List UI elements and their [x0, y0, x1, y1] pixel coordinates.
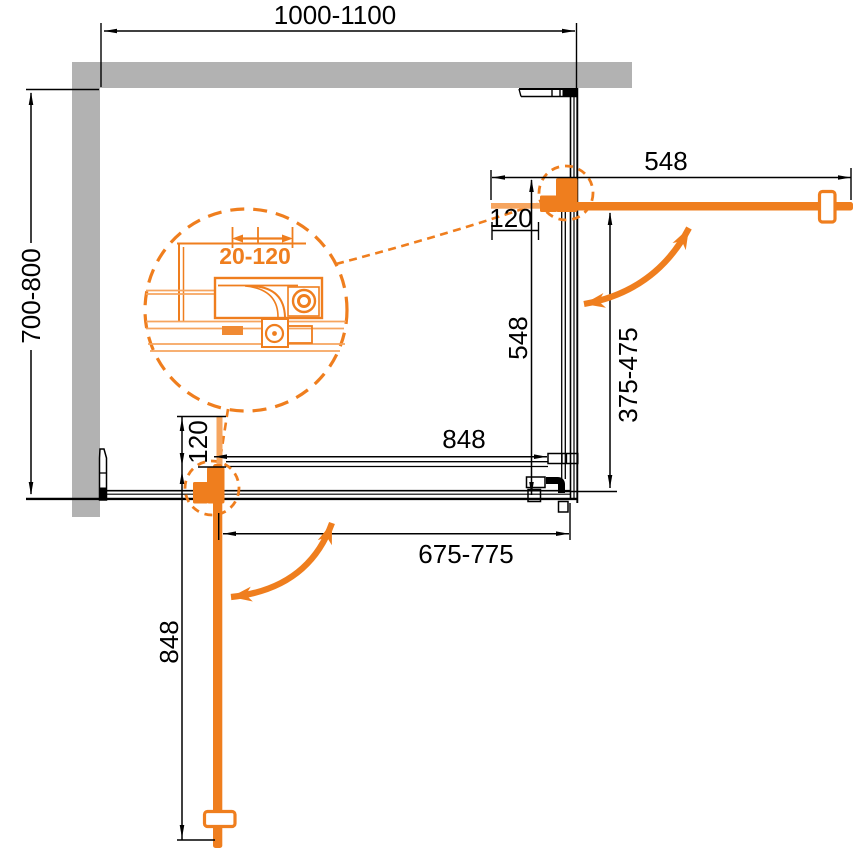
- door-right-glass: [541, 202, 853, 211]
- dim-right-panel-length: 548: [503, 316, 533, 359]
- dim-right-pivot-offset: 120: [489, 203, 532, 233]
- door-right: [491, 178, 853, 212]
- dim-detail-adjustment: 20-120: [219, 243, 291, 269]
- door-bottom-glass: [213, 464, 222, 848]
- dimension-lines: [26, 23, 851, 840]
- door-bottom-pivot-bracket: [193, 467, 225, 504]
- dim-left-depth: 700-800: [16, 248, 46, 343]
- swing-arc-right-door: [584, 228, 689, 304]
- door-bottom: [193, 417, 225, 848]
- fixed-panel-right: [519, 88, 577, 503]
- technical-drawing-canvas: 20-120: [0, 0, 857, 849]
- dim-right-door-width: 548: [644, 146, 687, 176]
- walls: [72, 62, 632, 517]
- dim-right-opening: 375-475: [613, 327, 643, 422]
- dim-bottom-span: 848: [442, 424, 485, 454]
- handle-right-door: [820, 192, 836, 223]
- dim-bottom-door-length: 848: [154, 620, 184, 663]
- wall-left: [72, 62, 100, 517]
- handle-bottom-door: [205, 812, 236, 827]
- dim-top-width: 1000-1100: [274, 0, 396, 30]
- door-right-pivot-bracket: [540, 178, 578, 212]
- dimension-labels: 1000-1100 700-800 548 120 548 375-475 84…: [16, 0, 688, 664]
- wall-top: [72, 62, 632, 88]
- dim-bottom-pivot-offset: 120: [183, 420, 213, 463]
- door-bottom-rear-segment: [217, 417, 223, 470]
- dim-bottom-opening: 675-775: [418, 539, 513, 569]
